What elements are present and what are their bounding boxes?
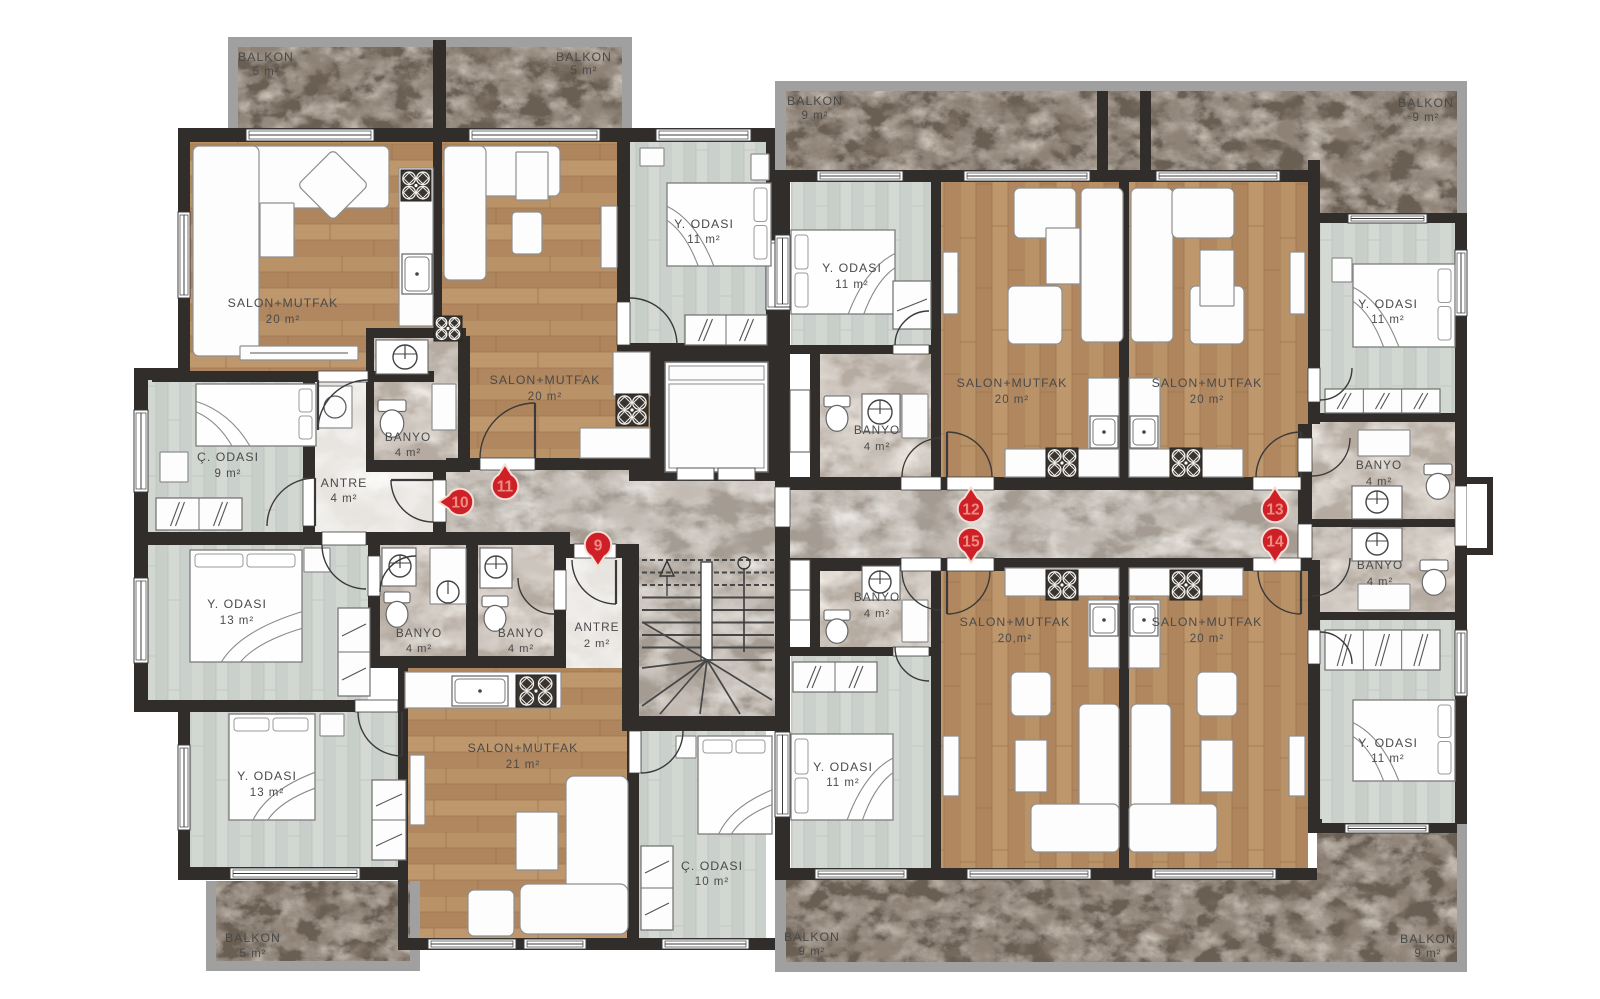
svg-text:9 m²: 9 m² (1413, 112, 1440, 124)
svg-text:2 m²: 2 m² (584, 638, 610, 650)
svg-text:13: 13 (1266, 502, 1284, 519)
svg-text:BALKON: BALKON (1398, 96, 1454, 110)
svg-text:Ç. ODASI: Ç. ODASI (681, 859, 743, 873)
svg-text:BALKON: BALKON (784, 930, 840, 944)
svg-text:21 m²: 21 m² (506, 759, 540, 771)
svg-text:BANYO: BANYO (385, 430, 431, 444)
svg-text:15: 15 (962, 534, 980, 551)
svg-text:SALON+MUTFAK: SALON+MUTFAK (228, 296, 339, 310)
svg-text:5 m²: 5 m² (571, 65, 598, 77)
svg-text:9 m²: 9 m² (799, 946, 826, 958)
svg-text:4 m²: 4 m² (1367, 576, 1393, 588)
svg-text:Y. ODASI: Y. ODASI (674, 217, 734, 231)
svg-text:SALON+MUTFAK: SALON+MUTFAK (960, 615, 1071, 629)
svg-text:4 m²: 4 m² (331, 493, 358, 505)
svg-text:Y. ODASI: Y. ODASI (237, 769, 297, 783)
svg-text:9: 9 (594, 538, 603, 555)
svg-text:11 m²: 11 m² (1371, 314, 1405, 326)
svg-text:12: 12 (962, 502, 979, 519)
svg-text:ANTRE: ANTRE (321, 476, 368, 490)
svg-text:13 m²: 13 m² (220, 615, 254, 627)
svg-text:BANYO: BANYO (854, 590, 900, 604)
svg-text:SALON+MUTFAK: SALON+MUTFAK (490, 373, 601, 387)
svg-text:SALON+MUTFAK: SALON+MUTFAK (1152, 376, 1263, 390)
svg-text:11 m²: 11 m² (687, 234, 721, 246)
svg-text:BALKON: BALKON (238, 50, 294, 64)
svg-text:BANYO: BANYO (854, 423, 900, 437)
svg-text:11: 11 (497, 479, 514, 496)
svg-text:9 m²: 9 m² (802, 110, 829, 122)
svg-text:BALKON: BALKON (1400, 932, 1456, 946)
svg-text:BALKON: BALKON (787, 94, 843, 108)
svg-text:9 m²: 9 m² (215, 468, 242, 480)
svg-text:13 m²: 13 m² (250, 787, 284, 799)
svg-text:Y. ODASI: Y. ODASI (822, 261, 882, 275)
svg-text:4 m²: 4 m² (406, 643, 432, 655)
svg-text:14: 14 (1266, 534, 1284, 551)
svg-text:BANYO: BANYO (396, 626, 442, 640)
svg-text:4 m²: 4 m² (864, 441, 890, 453)
svg-text:20 m²: 20 m² (1190, 394, 1224, 406)
svg-text:SALON+MUTFAK: SALON+MUTFAK (1152, 615, 1263, 629)
svg-text:11 m²: 11 m² (826, 777, 860, 789)
svg-text:5 m²: 5 m² (240, 948, 267, 960)
svg-text:Ç. ODASI: Ç. ODASI (197, 450, 259, 464)
svg-text:SALON+MUTFAK: SALON+MUTFAK (957, 376, 1068, 390)
svg-text:10: 10 (451, 495, 468, 512)
svg-text:BALKON: BALKON (556, 50, 612, 64)
svg-text:Y. ODASI: Y. ODASI (207, 597, 267, 611)
svg-text:5 m²: 5 m² (253, 66, 280, 78)
svg-text:4 m²: 4 m² (864, 608, 890, 620)
svg-text:11 m²: 11 m² (1371, 753, 1405, 765)
svg-text:SALON+MUTFAK: SALON+MUTFAK (468, 741, 579, 755)
svg-text:ANTRE: ANTRE (575, 620, 620, 634)
svg-text:10 m²: 10 m² (695, 876, 729, 888)
svg-text:Y. ODASI: Y. ODASI (813, 760, 873, 774)
svg-text:20 m²: 20 m² (1190, 633, 1224, 645)
svg-text:Y. ODASI: Y. ODASI (1358, 736, 1418, 750)
svg-text:20 m²: 20 m² (528, 391, 562, 403)
svg-text:BANYO: BANYO (1356, 458, 1402, 472)
svg-text:BANYO: BANYO (498, 626, 544, 640)
svg-text:20 m²: 20 m² (266, 314, 300, 326)
svg-text:BALKON: BALKON (225, 931, 281, 945)
svg-text:9 m²: 9 m² (1415, 948, 1442, 960)
svg-text:11 m²: 11 m² (835, 279, 869, 291)
svg-text:Y. ODASI: Y. ODASI (1358, 297, 1418, 311)
svg-text:4 m²: 4 m² (395, 447, 421, 459)
svg-text:4 m²: 4 m² (1366, 476, 1392, 488)
svg-text:20 m²: 20 m² (995, 394, 1029, 406)
svg-text:4 m²: 4 m² (508, 643, 534, 655)
svg-text:20,m²: 20,m² (998, 633, 1032, 645)
svg-text:BANYO: BANYO (1357, 558, 1403, 572)
